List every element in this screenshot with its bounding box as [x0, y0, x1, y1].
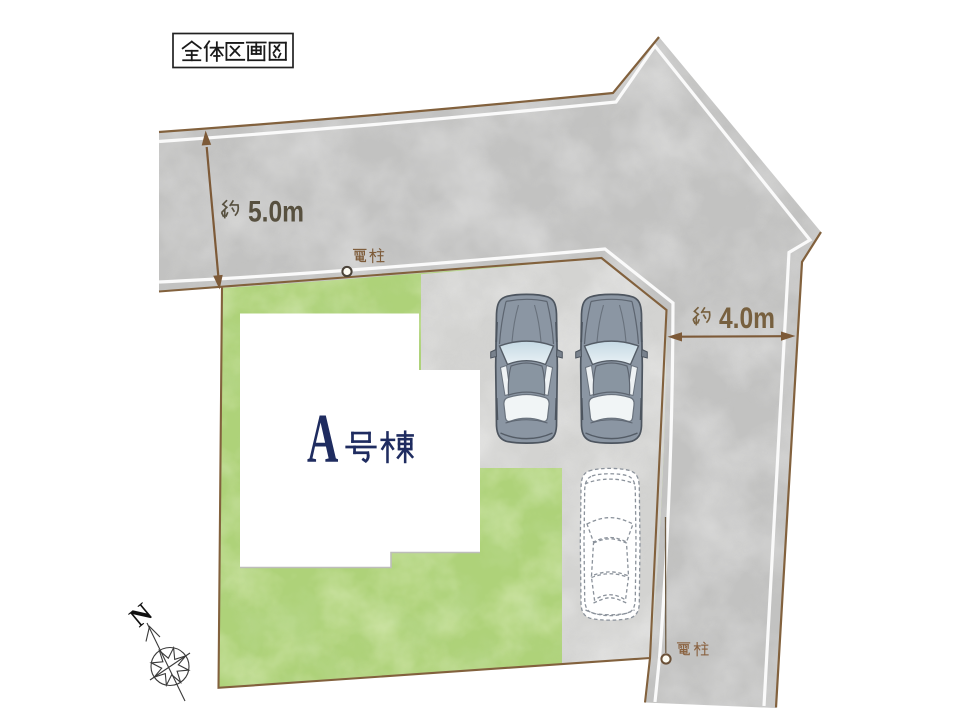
svg-text:5.0m: 5.0m: [248, 194, 304, 228]
svg-text:N: N: [124, 597, 159, 633]
svg-text:A: A: [307, 399, 338, 477]
svg-text:4.0m: 4.0m: [719, 301, 775, 335]
